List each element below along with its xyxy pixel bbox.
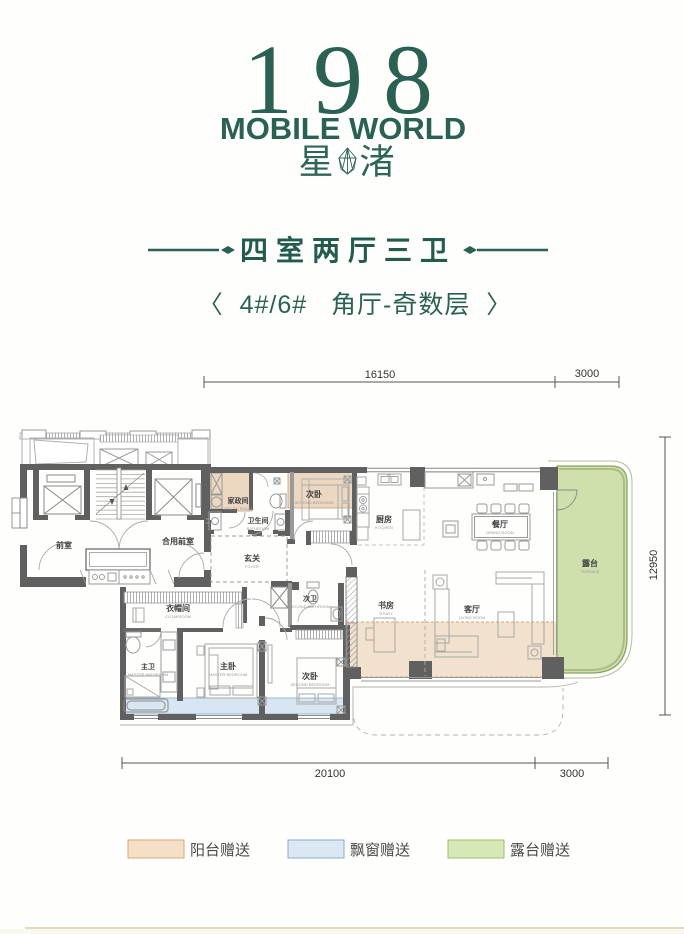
svg-text:阳台赠送: 阳台赠送 [190, 842, 250, 859]
svg-text:露台赠送: 露台赠送 [510, 842, 570, 859]
svg-text:飘窗赠送: 飘窗赠送 [350, 841, 410, 859]
